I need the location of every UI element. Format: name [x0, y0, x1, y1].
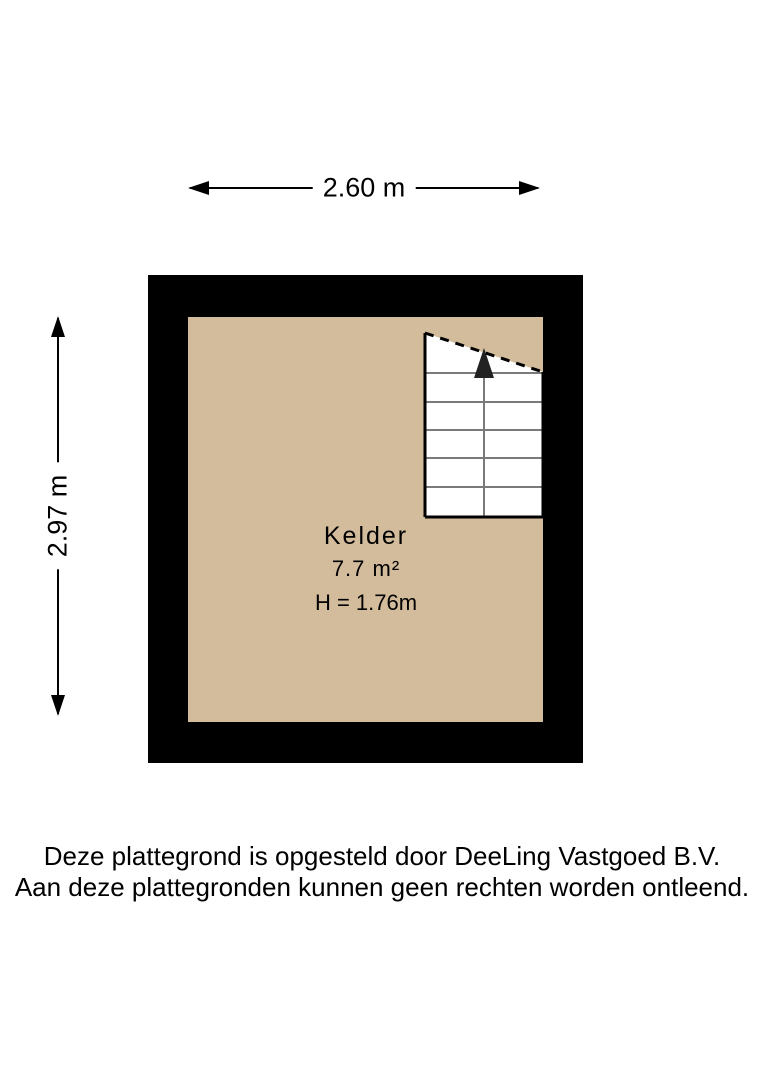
disclaimer-line-1: Deze plattegrond is opgesteld door DeeLi…	[0, 841, 764, 872]
disclaimer-line-2: Aan deze plattegronden kunnen geen recht…	[0, 872, 764, 903]
arrow-left-icon	[188, 181, 209, 195]
width-dimension-label: 2.60 m	[313, 173, 416, 204]
arrow-right-icon	[519, 181, 540, 195]
floorplan-page: 2.60 m 2.97 m Kelder 7.7 m² H = 1.	[0, 0, 764, 1080]
basement-plan	[148, 275, 583, 763]
arrow-up-icon	[51, 316, 65, 337]
staircase	[422, 330, 546, 520]
arrow-down-icon	[51, 695, 65, 716]
height-dimension: 2.97 m	[44, 316, 72, 716]
width-dimension: 2.60 m	[188, 174, 540, 202]
height-dimension-label: 2.97 m	[43, 463, 74, 570]
disclaimer: Deze plattegrond is opgesteld door DeeLi…	[0, 841, 764, 903]
